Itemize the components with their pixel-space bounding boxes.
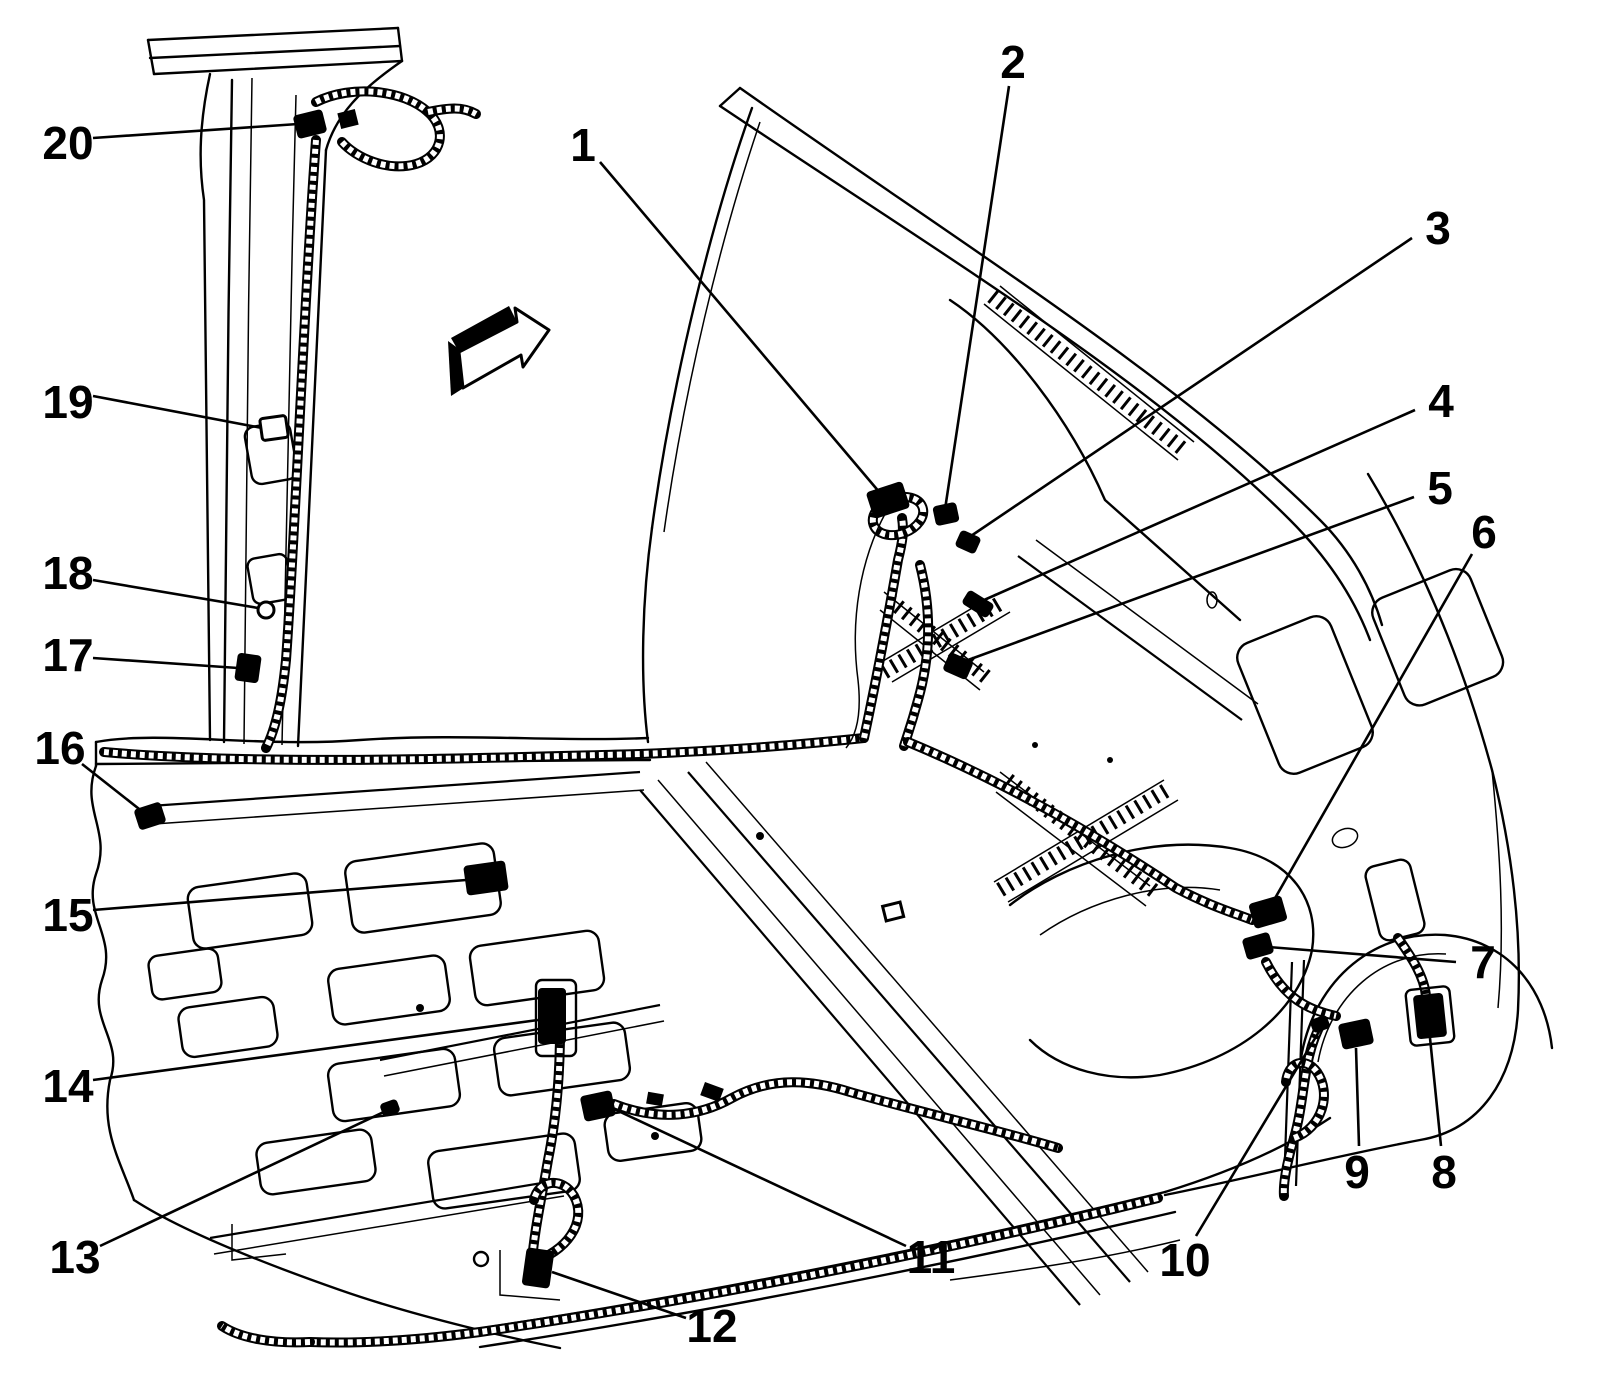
callout-3-label: 3 — [1425, 202, 1451, 254]
connector-20-icon — [294, 110, 326, 138]
callout-6-label: 6 — [1471, 506, 1497, 558]
callout-17-label: 17 — [42, 629, 93, 681]
callout-5-label: 5 — [1427, 462, 1453, 514]
connector-17-icon — [235, 654, 260, 683]
callout-7-label: 7 — [1470, 936, 1496, 988]
callout-9-leader-line — [1356, 1048, 1359, 1146]
callout-14-label: 14 — [42, 1060, 94, 1112]
callout-15-label: 15 — [42, 889, 93, 941]
connector-1-icon — [867, 482, 909, 518]
callout-11-leader-line — [612, 1108, 906, 1246]
callout-8-leader-line — [1430, 1038, 1441, 1146]
callout-2-label: 2 — [1000, 36, 1026, 88]
floor-pan — [91, 737, 764, 1348]
callout-3-leader-line — [965, 238, 1412, 540]
diagram-page: 1234567891011121314151617181920 — [0, 0, 1600, 1388]
connector-15-icon — [464, 861, 508, 894]
callout-14-leader-line — [93, 1020, 538, 1080]
connector-6-icon — [1249, 896, 1286, 928]
callout-1-label: 1 — [570, 119, 596, 171]
callout-4-leader-line — [975, 410, 1415, 604]
callout-1-leader-line — [600, 162, 886, 500]
callouts-layer: 1234567891011121314151617181920 — [34, 36, 1496, 1352]
connector-2-icon — [933, 503, 958, 525]
connector-3-icon — [956, 531, 981, 554]
connector-12-icon — [523, 1248, 554, 1287]
seat-cushion — [883, 845, 1314, 1078]
connector-4-icon — [962, 591, 993, 618]
callout-6-leader-line — [1266, 554, 1472, 914]
callout-11-label: 11 — [907, 1231, 956, 1283]
connector-16-icon — [135, 802, 166, 829]
callout-20-leader-line — [93, 124, 298, 138]
callout-19-label: 19 — [42, 376, 93, 428]
connector-5-icon — [943, 653, 972, 679]
callout-18-leader-line — [93, 580, 258, 608]
callout-18-label: 18 — [42, 547, 93, 599]
harness-looms — [104, 91, 1455, 1342]
direction-arrow-icon — [448, 306, 549, 396]
callout-16-label: 16 — [34, 722, 85, 774]
callout-13-label: 13 — [49, 1231, 100, 1283]
callout-17-leader-line — [93, 658, 238, 668]
callout-8-label: 8 — [1431, 1146, 1457, 1198]
callout-19-leader-line — [93, 396, 262, 428]
callout-20-label: 20 — [42, 117, 93, 169]
callout-4-label: 4 — [1428, 375, 1454, 427]
connector-14-icon — [539, 989, 565, 1043]
wiring-harness-location-diagram: 1234567891011121314151617181920 — [0, 0, 1600, 1388]
rear-sill — [340, 1118, 1330, 1347]
connector-9-icon — [1339, 1019, 1373, 1049]
roof-rail — [148, 28, 402, 74]
callout-10-label: 10 — [1159, 1234, 1210, 1286]
callout-9-label: 9 — [1344, 1146, 1370, 1198]
connector-11-icon — [581, 1091, 615, 1121]
callout-12-label: 12 — [686, 1300, 737, 1352]
connector-18-icon — [258, 602, 274, 618]
connector-7-icon — [1243, 933, 1274, 959]
connector-8-icon — [1414, 994, 1446, 1039]
callout-15-leader-line — [93, 880, 466, 910]
connector-19-icon — [260, 415, 289, 440]
callout-13-leader-line — [100, 1110, 388, 1246]
callout-2-leader-line — [944, 86, 1009, 516]
